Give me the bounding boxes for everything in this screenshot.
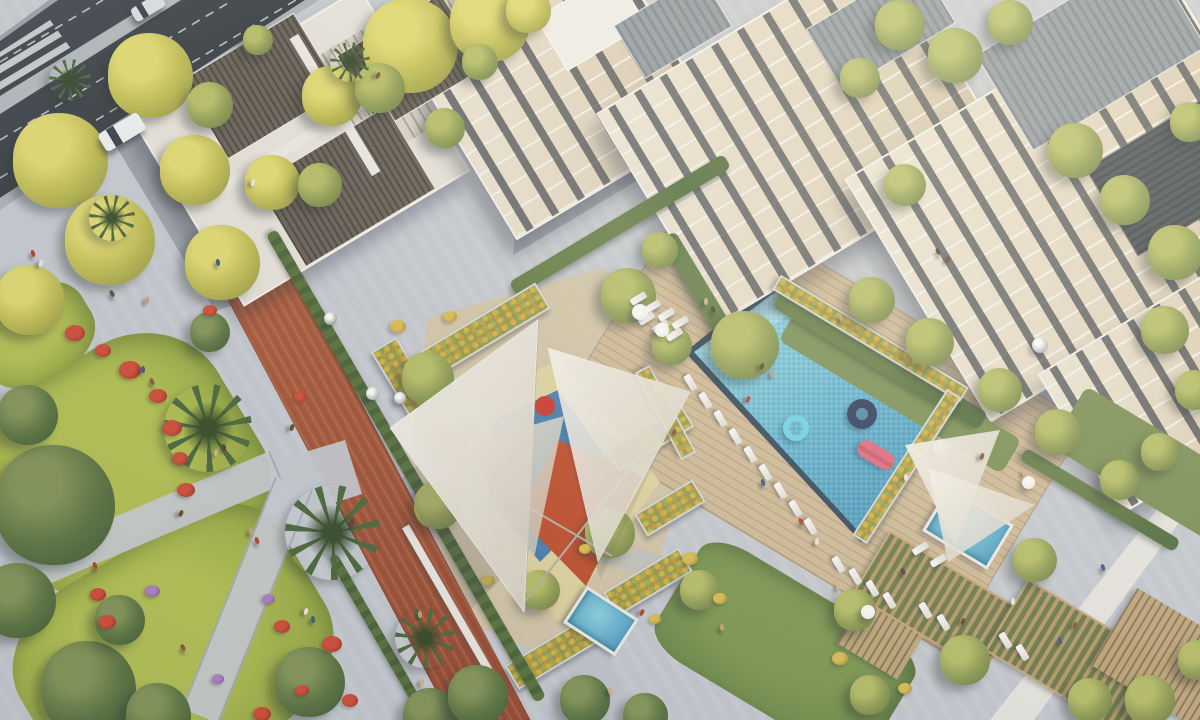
person [250, 179, 255, 187]
person [704, 298, 708, 305]
person [1100, 564, 1106, 572]
person [375, 71, 382, 79]
person [904, 474, 908, 481]
person [215, 259, 220, 267]
person [109, 289, 116, 297]
person [838, 314, 843, 322]
people-layer [0, 0, 1200, 720]
person [836, 583, 840, 590]
person [141, 366, 145, 373]
person [149, 377, 156, 385]
person [945, 256, 950, 264]
person [145, 297, 150, 304]
person [349, 518, 355, 526]
person [759, 363, 765, 371]
person [639, 608, 646, 616]
person [798, 517, 805, 525]
person [254, 537, 260, 545]
person [1011, 598, 1016, 605]
person [745, 395, 752, 403]
person [671, 428, 677, 436]
person [760, 479, 766, 487]
person [710, 306, 716, 314]
person [960, 618, 966, 626]
person [420, 679, 425, 686]
person [814, 538, 819, 546]
person [180, 643, 187, 651]
person [221, 444, 226, 452]
person [303, 608, 309, 616]
person [311, 616, 316, 623]
aerial-rendering-canvas [0, 0, 1200, 720]
person [719, 624, 724, 632]
person [608, 687, 613, 694]
person [289, 424, 295, 432]
person [1072, 622, 1078, 630]
person [1022, 469, 1026, 476]
person [979, 453, 985, 461]
person [900, 567, 906, 575]
person [92, 561, 99, 569]
person [178, 509, 185, 517]
person [249, 528, 253, 535]
person [1057, 637, 1063, 645]
person [30, 250, 36, 258]
person [38, 260, 44, 268]
person [418, 611, 422, 618]
person [770, 370, 775, 377]
person [213, 449, 218, 457]
person [935, 247, 942, 255]
